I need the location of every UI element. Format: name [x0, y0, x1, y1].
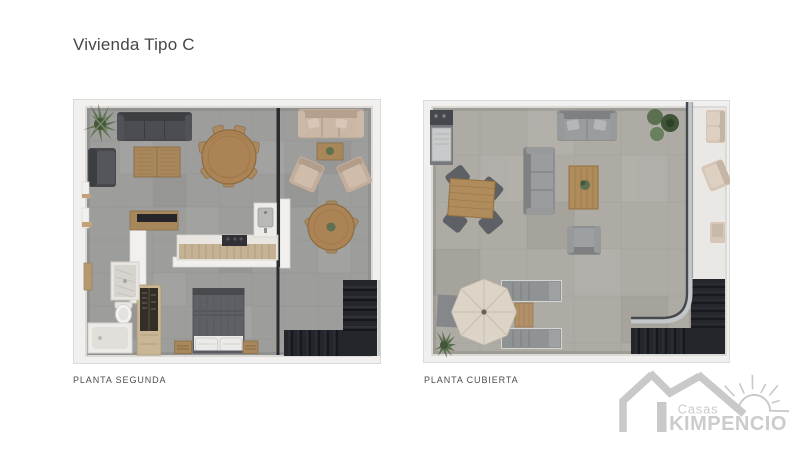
svg-text:KIMPENCIO: KIMPENCIO	[669, 413, 787, 435]
